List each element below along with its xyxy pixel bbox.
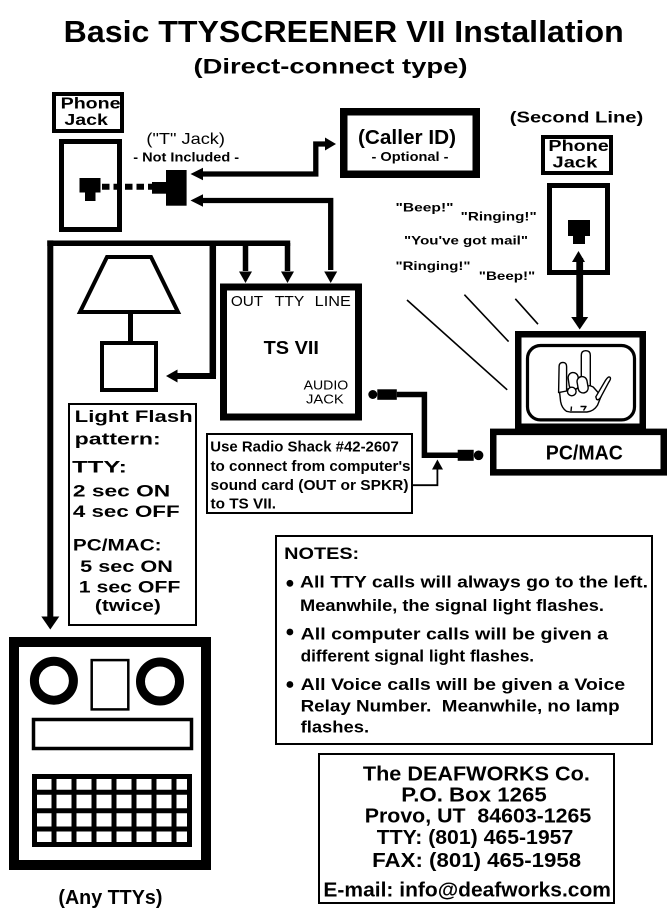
- svg-text:("T" Jack): ("T" Jack): [146, 131, 225, 148]
- svg-text:NOTES:: NOTES:: [284, 544, 359, 563]
- svg-text:Provo, UT 84603-1265: Provo, UT 84603-1265: [365, 805, 592, 827]
- svg-text:pattern:: pattern:: [75, 430, 161, 449]
- svg-text:TS VII: TS VII: [264, 338, 319, 358]
- svg-text:(Second Line): (Second Line): [510, 110, 644, 127]
- svg-text:AUDIO: AUDIO: [304, 378, 349, 393]
- svg-text:TTY:: TTY:: [72, 458, 127, 477]
- svg-text:OUT: OUT: [231, 293, 263, 310]
- svg-text:"Ringing!": "Ringing!": [396, 259, 471, 273]
- svg-text:flashes.: flashes.: [301, 718, 370, 737]
- svg-text:PC/MAC: PC/MAC: [546, 443, 623, 465]
- svg-text:(Caller ID): (Caller ID): [358, 127, 456, 149]
- svg-text:LINE: LINE: [315, 293, 351, 310]
- svg-text:"You've got mail": "You've got mail": [404, 234, 528, 248]
- svg-text:P.O. Box 1265: P.O. Box 1265: [401, 785, 547, 807]
- svg-text:to connect from computer's: to connect from computer's: [211, 458, 411, 475]
- svg-text:to TS VII.: to TS VII.: [211, 496, 277, 513]
- svg-text:TTY: (801) 465-1957: TTY: (801) 465-1957: [377, 827, 574, 849]
- svg-text:TTY: TTY: [275, 293, 305, 310]
- svg-text:2 sec ON: 2 sec ON: [73, 482, 170, 501]
- svg-text:(Direct-connect type): (Direct-connect type): [194, 56, 468, 79]
- svg-text:Jack: Jack: [553, 154, 598, 171]
- svg-text:4 sec OFF: 4 sec OFF: [73, 502, 180, 521]
- svg-text:Basic TTYSCREENER VII Installa: Basic TTYSCREENER VII Installation: [64, 14, 624, 49]
- svg-text:Relay Number. Meanwhile, no l: Relay Number. Meanwhile, no lamp: [301, 697, 620, 716]
- svg-text:E-mail: info@deafworks.com: E-mail: info@deafworks.com: [323, 880, 611, 902]
- svg-text:Meanwhile, the signal light fl: Meanwhile, the signal light flashes.: [300, 596, 604, 615]
- svg-text:The DEAFWORKS Co.: The DEAFWORKS Co.: [363, 764, 590, 786]
- svg-text:sound card (OUT or SPKR): sound card (OUT or SPKR): [211, 477, 409, 494]
- svg-text:Light Flash: Light Flash: [75, 407, 193, 426]
- svg-text:(Any TTYs): (Any TTYs): [58, 887, 162, 909]
- svg-text:PC/MAC:: PC/MAC:: [73, 536, 162, 555]
- svg-text:Jack: Jack: [64, 112, 108, 129]
- svg-text:JACK: JACK: [306, 392, 344, 407]
- svg-text:All computer calls will be giv: All computer calls will be given a: [301, 625, 609, 644]
- svg-text:"Beep!": "Beep!": [479, 269, 536, 283]
- svg-text:FAX: (801) 465-1958: FAX: (801) 465-1958: [372, 850, 581, 872]
- svg-text:(twice): (twice): [95, 596, 161, 615]
- svg-text:- Optional -: - Optional -: [372, 149, 449, 164]
- svg-text:- Not Included -: - Not Included -: [133, 150, 239, 165]
- svg-text:All TTY calls will always go t: All TTY calls will always go to the left…: [300, 573, 648, 592]
- svg-text:Phone: Phone: [548, 138, 609, 155]
- svg-text:All Voice calls will be given: All Voice calls will be given a Voice: [301, 675, 625, 694]
- svg-text:different signal light flashes: different signal light flashes.: [301, 647, 534, 666]
- svg-text:Phone: Phone: [61, 96, 121, 113]
- svg-text:5 sec ON: 5 sec ON: [80, 557, 173, 576]
- svg-text:Use Radio Shack #42-2607: Use Radio Shack #42-2607: [210, 439, 398, 456]
- svg-text:"Ringing!": "Ringing!": [461, 210, 537, 224]
- svg-text:1 sec OFF: 1 sec OFF: [79, 578, 181, 597]
- svg-text:"Beep!": "Beep!": [396, 201, 454, 215]
